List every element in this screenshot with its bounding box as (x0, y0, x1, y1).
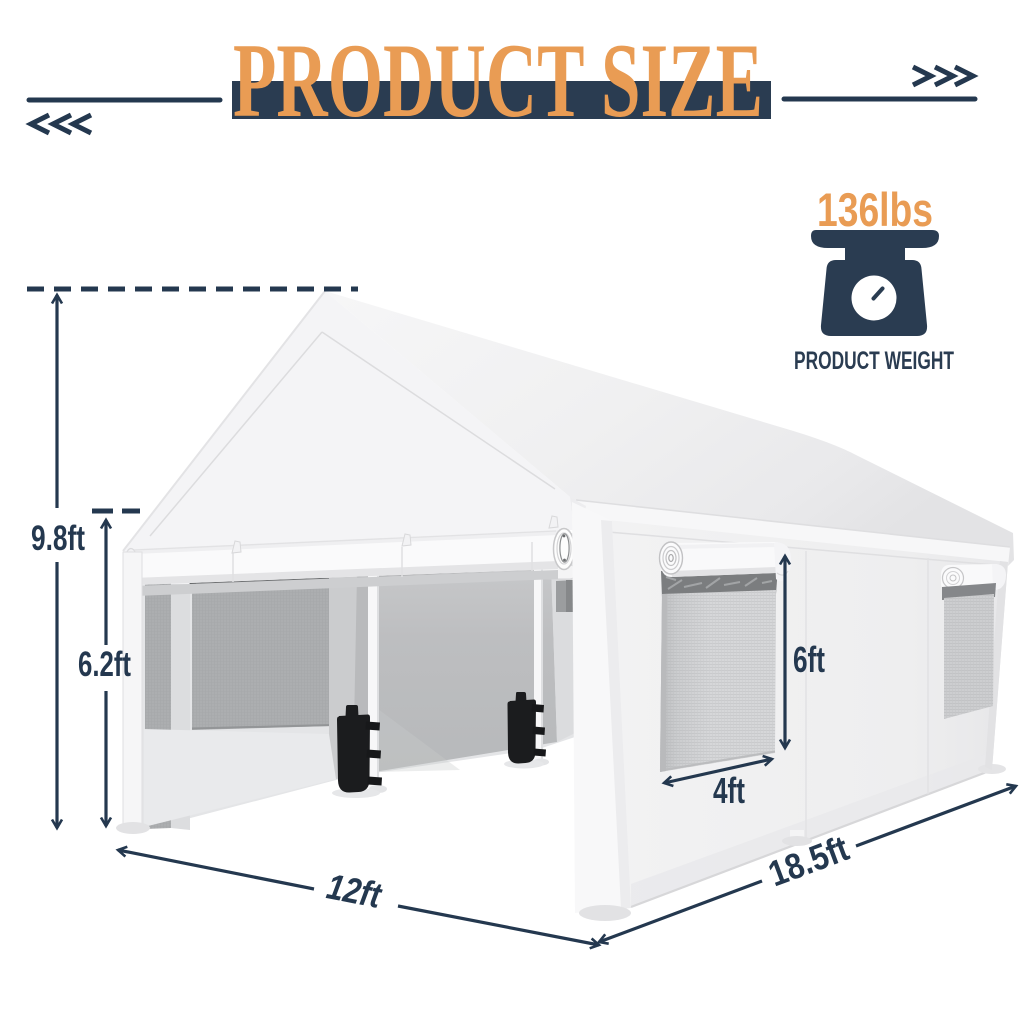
svg-text:6ft: 6ft (793, 639, 825, 680)
svg-text:12ft: 12ft (324, 865, 386, 916)
svg-text:9.8ft: 9.8ft (31, 519, 85, 558)
svg-text:6.2ft: 6.2ft (78, 645, 131, 684)
svg-text:PRODUCT WEIGHT: PRODUCT WEIGHT (794, 347, 954, 375)
svg-text:PRODUCT SIZE: PRODUCT SIZE (233, 22, 763, 139)
svg-text:136lbs: 136lbs (817, 183, 933, 236)
svg-text:4ft: 4ft (713, 770, 745, 811)
